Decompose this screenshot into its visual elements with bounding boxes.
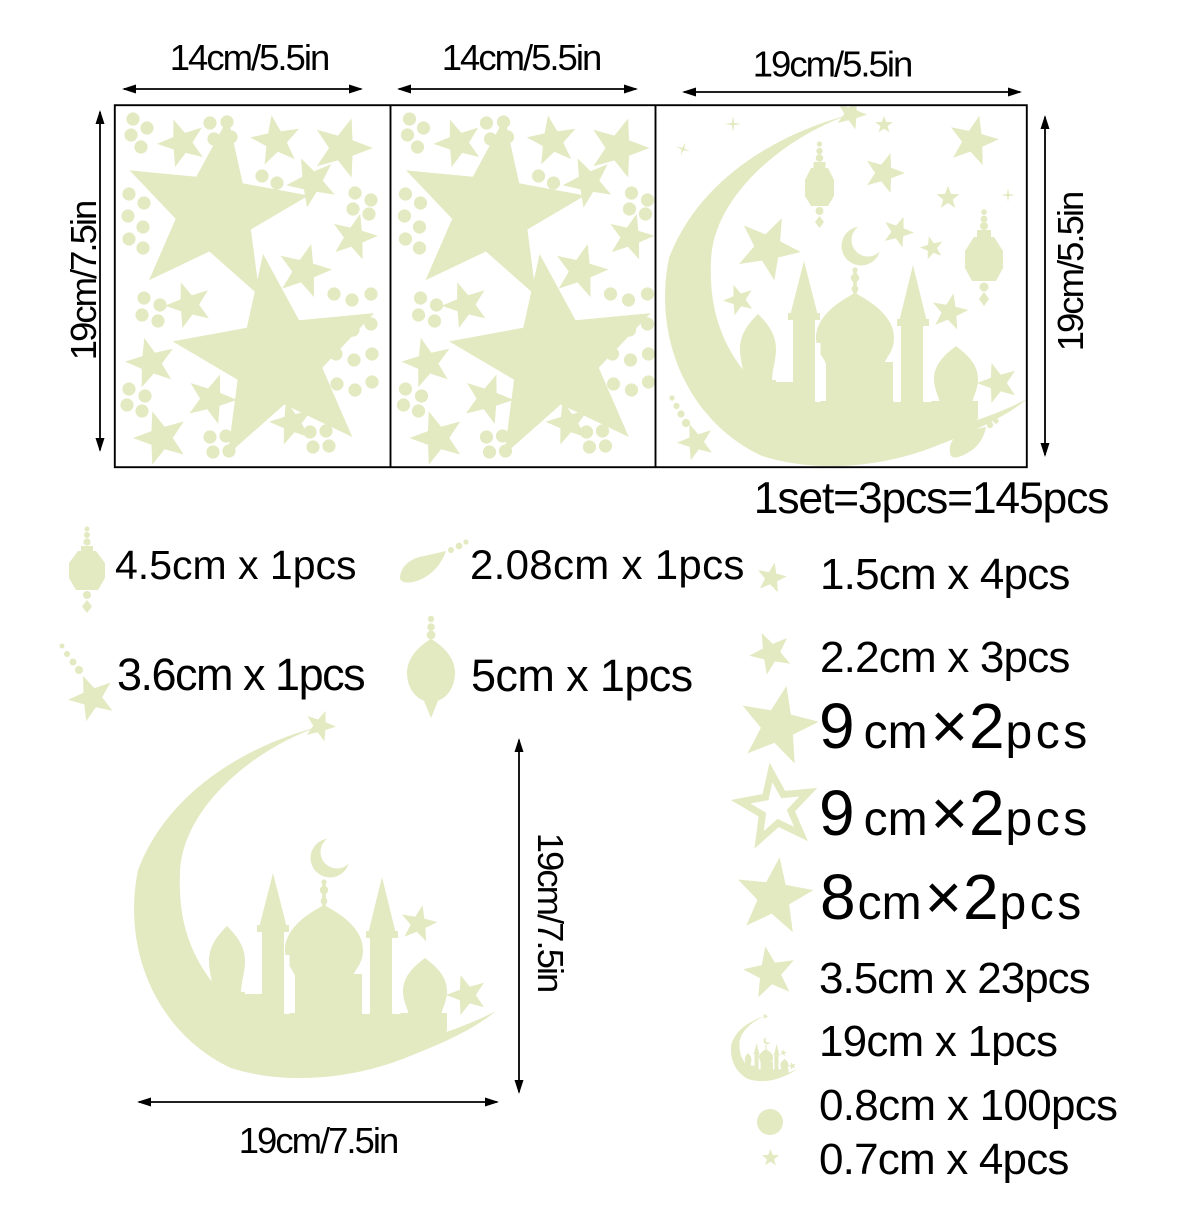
svg-text:5cm x 1pcs: 5cm x 1pcs bbox=[471, 650, 693, 701]
svg-text:19cm/5.5in: 19cm/5.5in bbox=[753, 44, 912, 85]
svg-text:2.08cm x 1pcs: 2.08cm x 1pcs bbox=[470, 541, 745, 588]
svg-text:19cm x 1pcs: 19cm x 1pcs bbox=[819, 1017, 1057, 1066]
svg-text:3.6cm x 1pcs: 3.6cm x 1pcs bbox=[117, 649, 364, 700]
svg-text:19cm/7.5in: 19cm/7.5in bbox=[63, 202, 104, 361]
svg-text:14cm/5.5in: 14cm/5.5in bbox=[442, 37, 601, 78]
svg-text:14cm/5.5in: 14cm/5.5in bbox=[170, 37, 329, 78]
svg-text:2.2cm x 3pcs: 2.2cm x 3pcs bbox=[820, 633, 1070, 682]
svg-text:4.5cm x 1pcs: 4.5cm x 1pcs bbox=[115, 542, 357, 588]
svg-text:1.5cm x 4pcs: 1.5cm x 4pcs bbox=[820, 550, 1070, 599]
svg-text:19cm/5.5in: 19cm/5.5in bbox=[1050, 193, 1091, 352]
svg-text:19cm/7.5in: 19cm/7.5in bbox=[239, 1120, 398, 1161]
svg-text:0.8cm x 100pcs: 0.8cm x 100pcs bbox=[819, 1081, 1117, 1130]
svg-text:3.5cm x 23pcs: 3.5cm x 23pcs bbox=[819, 954, 1090, 1003]
svg-text:0.7cm x 4pcs: 0.7cm x 4pcs bbox=[819, 1135, 1069, 1184]
svg-text:1set=3pcs=145pcs: 1set=3pcs=145pcs bbox=[754, 474, 1108, 523]
svg-text:19cm/7.5in: 19cm/7.5in bbox=[530, 833, 571, 992]
